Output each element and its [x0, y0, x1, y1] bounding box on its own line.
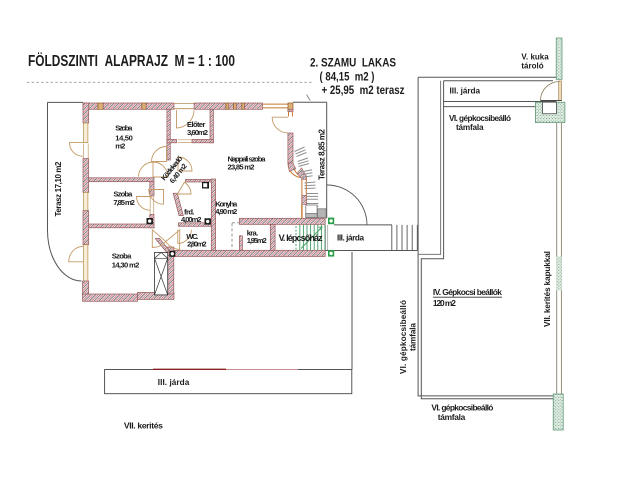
svg-text:4,00m2: 4,00m2: [181, 215, 202, 224]
svg-text:m2: m2: [115, 141, 125, 150]
svg-text:támfala: támfala: [456, 123, 484, 132]
svg-text:+ 25,95 m2 terasz: + 25,95 m2 terasz: [322, 83, 405, 97]
svg-text:támfala: támfala: [409, 323, 418, 351]
svg-text:VII. kerités: VII. kerités: [124, 420, 163, 430]
svg-text:120 m2: 120 m2: [433, 298, 456, 308]
svg-text:7,85 m2: 7,85 m2: [113, 198, 134, 207]
svg-text:támfala: támfala: [438, 412, 466, 422]
svg-text:V. kuka: V. kuka: [521, 53, 549, 62]
svg-text:Terasz 17,10 m2: Terasz 17,10 m2: [54, 161, 63, 217]
svg-text:14,30 m2: 14,30 m2: [112, 260, 140, 269]
svg-text:4,90 m2: 4,90 m2: [215, 207, 237, 216]
svg-text:( 84,15 m2 ): ( 84,15 m2 ): [320, 70, 375, 84]
svg-text:III. járda: III. járda: [158, 378, 190, 387]
svg-text:VI. gépkocsibeálló: VI. gépkocsibeálló: [399, 300, 408, 374]
svg-text:2. SZAMU LAKAS: 2. SZAMU LAKAS: [310, 56, 396, 70]
svg-text:III. járda: III. járda: [337, 234, 364, 243]
svg-text:VI. gépkocsibeálló: VI. gépkocsibeálló: [449, 114, 511, 123]
svg-text:IV. Gépkocsi beállók: IV. Gépkocsi beállók: [433, 287, 502, 297]
svg-text:Szoba: Szoba: [115, 124, 133, 133]
svg-text:23,85 m2: 23,85 m2: [228, 162, 255, 171]
svg-text:tároló: tároló: [521, 62, 543, 71]
svg-text:VI. gépkocsibeálló: VI. gépkocsibeálló: [431, 403, 493, 413]
svg-text:FÖLDSZINTI ALAPRAJZ M = 1 :: FÖLDSZINTI ALAPRAJZ M = 1 : 100: [28, 51, 235, 70]
svg-text:Terasz 8,85 m2: Terasz 8,85 m2: [318, 128, 327, 180]
svg-text:V. lépcsőház: V. lépcsőház: [279, 233, 324, 243]
svg-text:2,80m2: 2,80m2: [187, 239, 207, 248]
svg-text:VII. kerités kapukkal: VII. kerités kapukkal: [542, 251, 552, 327]
svg-text:III. járda: III. járda: [450, 87, 481, 96]
svg-text:3,60m2: 3,60m2: [187, 128, 208, 137]
svg-text:1,95m2: 1,95m2: [247, 236, 267, 245]
